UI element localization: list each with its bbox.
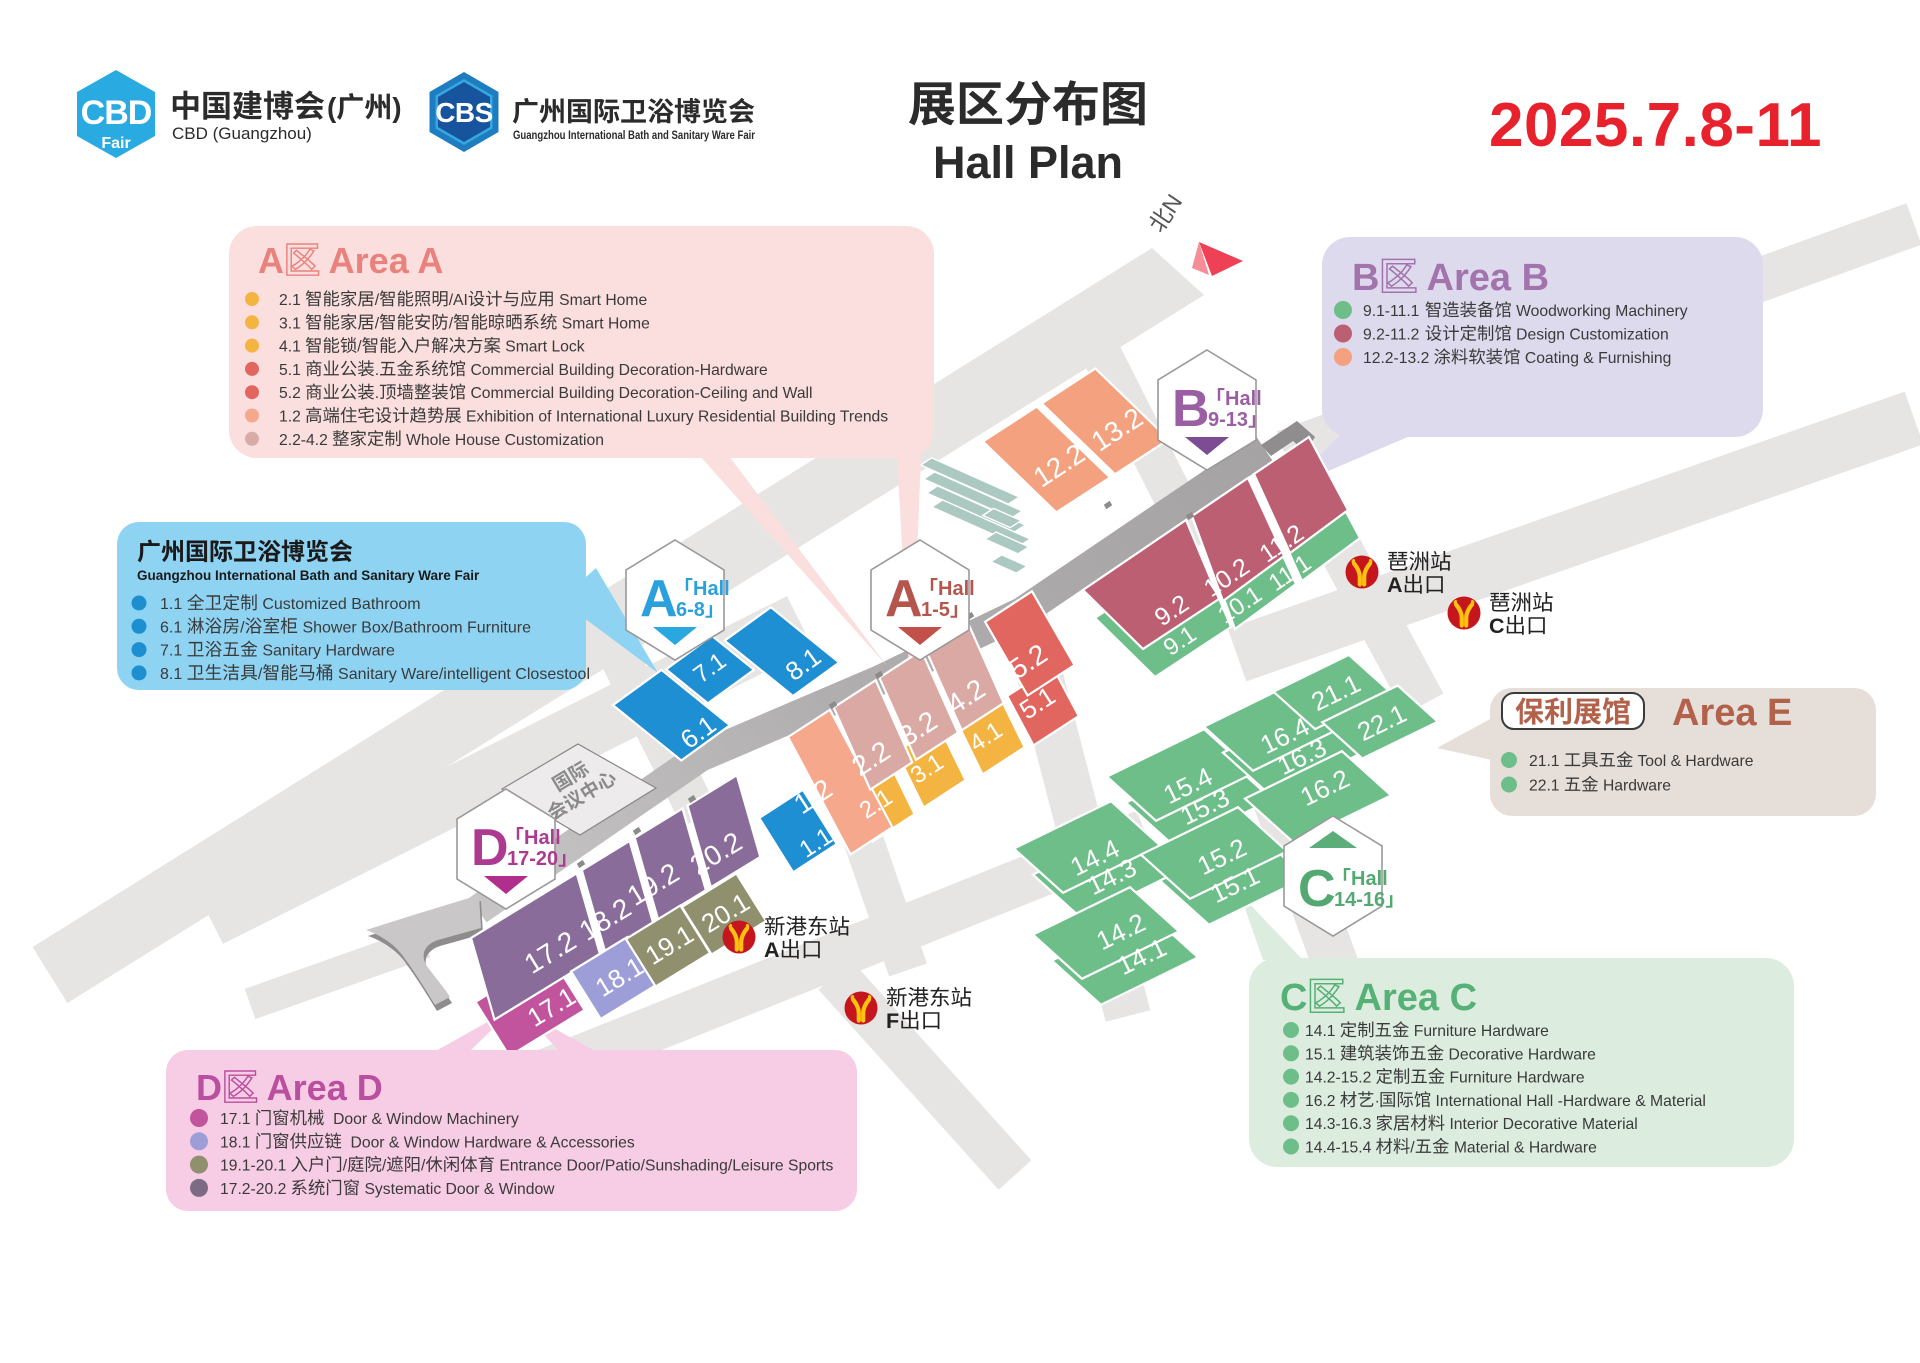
svg-text:2025.7.8-11: 2025.7.8-11	[1489, 91, 1822, 160]
svg-text:2.1: 2.1	[279, 292, 305, 309]
svg-text:Systematic Door & Window: Systematic Door & Window	[360, 1181, 555, 1198]
svg-text:A: A	[1387, 573, 1403, 597]
svg-text:Area D: Area D	[258, 1067, 383, 1108]
svg-text:6.1: 6.1	[160, 619, 187, 636]
svg-text:·: ·	[1375, 1093, 1380, 1110]
svg-text:Fair: Fair	[101, 135, 130, 152]
svg-text:3.1: 3.1	[279, 315, 305, 332]
svg-text:Smart Home: Smart Home	[555, 292, 648, 309]
svg-text:17.2-20.2: 17.2-20.2	[220, 1181, 291, 1198]
svg-text:): )	[392, 92, 401, 123]
svg-text:/: /	[382, 1158, 387, 1175]
svg-text:14-16: 14-16	[1334, 889, 1385, 911]
svg-text:Shower Box/Bathroom Furniture: Shower Box/Bathroom Furniture	[298, 619, 531, 636]
svg-text:Hall Plan: Hall Plan	[933, 137, 1123, 188]
svg-text:/: /	[357, 339, 362, 356]
svg-text:/: /	[1410, 1140, 1415, 1157]
svg-text:/AI: /AI	[449, 292, 468, 309]
svg-text:B: B	[1172, 380, 1210, 438]
svg-text:/: /	[421, 1158, 426, 1175]
svg-text:.: .	[375, 385, 379, 402]
svg-text:A: A	[640, 570, 678, 628]
svg-text:Material & Hardware: Material & Hardware	[1450, 1140, 1598, 1157]
svg-text:/: /	[240, 619, 245, 636]
svg-text:F: F	[886, 1009, 899, 1033]
svg-text:14.2-15.2: 14.2-15.2	[1305, 1070, 1376, 1087]
svg-text:16.2: 16.2	[1305, 1093, 1340, 1110]
svg-text:1.1: 1.1	[160, 596, 187, 613]
svg-text:CBD (Guangzhou): CBD (Guangzhou)	[172, 124, 312, 143]
svg-text:2.2-4.2: 2.2-4.2	[279, 432, 332, 449]
svg-text:Interior Decorative Material: Interior Decorative Material	[1445, 1116, 1638, 1133]
svg-text:Design Customization: Design Customization	[1512, 327, 1669, 344]
svg-text:.: .	[375, 362, 379, 379]
svg-text:19.1-20.1: 19.1-20.1	[220, 1158, 291, 1175]
svg-text:CBS: CBS	[435, 97, 493, 128]
svg-text:Hall: Hall	[938, 578, 975, 600]
svg-text:Commercial Building Decoration: Commercial Building Decoration-Ceiling a…	[466, 385, 812, 402]
svg-text:C: C	[1280, 977, 1307, 1019]
svg-text:Area A: Area A	[320, 240, 443, 281]
svg-text:C: C	[1489, 614, 1505, 638]
svg-text:12.2-13.2: 12.2-13.2	[1363, 350, 1434, 367]
svg-text:Area E: Area E	[1672, 692, 1792, 734]
svg-text:Door & Window Hardware & Acces: Door & Window Hardware & Accessories	[342, 1134, 635, 1151]
svg-text:/: /	[449, 315, 454, 332]
svg-text:8.1: 8.1	[160, 666, 187, 683]
svg-text:Guangzhou International Bath a: Guangzhou International Bath and Sanitar…	[513, 128, 755, 142]
svg-text:9.1-11.1: 9.1-11.1	[1363, 303, 1424, 320]
svg-text:14.1: 14.1	[1305, 1023, 1340, 1040]
svg-text:/: /	[343, 1158, 348, 1175]
svg-text:Decorative Hardware: Decorative Hardware	[1444, 1046, 1596, 1063]
svg-text:Area C: Area C	[1345, 977, 1477, 1019]
svg-text:9.2-11.2: 9.2-11.2	[1363, 327, 1424, 344]
svg-text:Customized Bathroom: Customized Bathroom	[258, 596, 421, 613]
svg-text:17.1: 17.1	[220, 1111, 255, 1128]
svg-text:(: (	[327, 92, 337, 123]
svg-text:/: /	[258, 666, 263, 683]
svg-text:14.4-15.4: 14.4-15.4	[1305, 1140, 1376, 1157]
svg-text:/: /	[375, 292, 380, 309]
svg-text:5.1: 5.1	[279, 362, 305, 379]
svg-text:Hall: Hall	[693, 578, 730, 600]
svg-text:9-13: 9-13	[1208, 409, 1248, 431]
svg-text:Tool & Hardware: Tool & Hardware	[1633, 753, 1753, 770]
svg-text:Door & Window Machinery: Door & Window Machinery	[324, 1111, 519, 1128]
svg-text:22.1: 22.1	[1529, 778, 1564, 795]
svg-text:4.1: 4.1	[279, 339, 305, 356]
svg-text:17-20: 17-20	[507, 848, 558, 870]
svg-text:Woodworking Machinery: Woodworking Machinery	[1512, 303, 1688, 320]
svg-text:5.2: 5.2	[279, 385, 305, 402]
svg-text:14.3-16.3: 14.3-16.3	[1305, 1116, 1376, 1133]
svg-text:Furniture Hardware: Furniture Hardware	[1445, 1070, 1585, 1087]
svg-text:A: A	[258, 240, 284, 281]
svg-text:Hall: Hall	[1351, 868, 1388, 890]
svg-text:Furniture Hardware: Furniture Hardware	[1409, 1023, 1549, 1040]
svg-text:7.1: 7.1	[160, 643, 187, 660]
svg-text:15.1: 15.1	[1305, 1046, 1340, 1063]
svg-text:21.1: 21.1	[1529, 753, 1564, 770]
svg-text:D: D	[471, 819, 509, 877]
svg-text:Exhibition of International Lu: Exhibition of International Luxury Resid…	[462, 409, 889, 426]
svg-text:/: /	[375, 315, 380, 332]
svg-text:1.2: 1.2	[279, 409, 305, 426]
svg-text:Sanitary Ware/intelligent Clos: Sanitary Ware/intelligent Closestool	[334, 666, 590, 683]
svg-text:6-8: 6-8	[676, 599, 705, 621]
svg-text:1-5: 1-5	[921, 599, 950, 621]
svg-text:B: B	[1352, 257, 1379, 299]
svg-text:Whole House Customization: Whole House Customization	[402, 432, 604, 449]
svg-text:Hardware: Hardware	[1599, 778, 1672, 795]
svg-text:International Hall -Hardware &: International Hall -Hardware & Material	[1431, 1093, 1706, 1110]
svg-text:Sanitary Hardware: Sanitary Hardware	[258, 643, 395, 660]
svg-text:Entrance Door/Patio/Sunshading: Entrance Door/Patio/Sunshading/Leisure S…	[495, 1158, 834, 1175]
svg-text:D: D	[196, 1067, 222, 1108]
svg-text:A: A	[885, 570, 923, 628]
svg-text:Area B: Area B	[1417, 257, 1549, 299]
svg-text:Commercial Building Decoration: Commercial Building Decoration-Hardware	[466, 362, 768, 379]
svg-text:A: A	[764, 938, 780, 962]
svg-text:Hall: Hall	[1225, 388, 1262, 410]
svg-text:Smart Lock: Smart Lock	[501, 339, 585, 356]
svg-text:C: C	[1298, 860, 1336, 918]
svg-text:Hall: Hall	[524, 827, 561, 849]
svg-text:Coating & Furnishing: Coating & Furnishing	[1521, 350, 1672, 367]
svg-text:CBD: CBD	[81, 94, 152, 132]
svg-text:Guangzhou International Bath a: Guangzhou International Bath and Sanitar…	[137, 568, 480, 583]
svg-text:Smart Home: Smart Home	[557, 315, 650, 332]
svg-text:18.1: 18.1	[220, 1134, 255, 1151]
